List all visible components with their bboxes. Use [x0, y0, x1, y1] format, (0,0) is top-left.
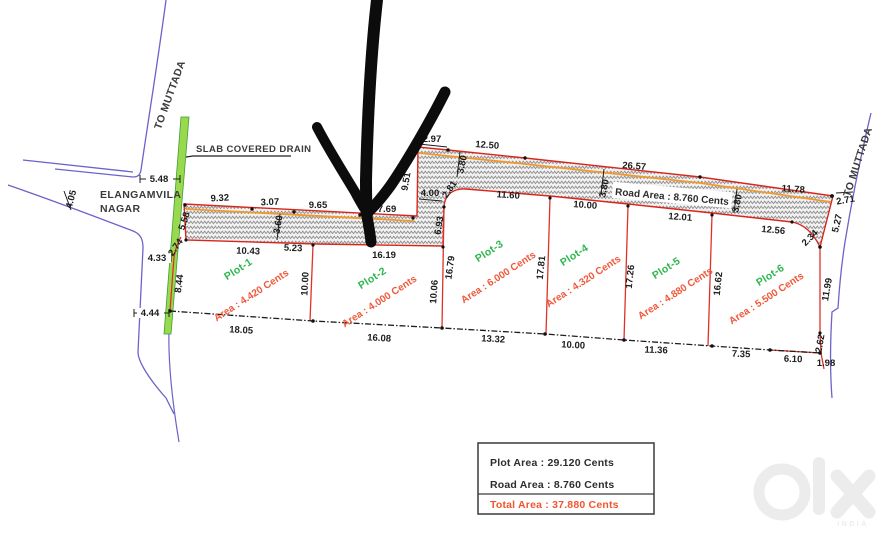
dimension-label: 18.05: [229, 324, 254, 336]
site-plan-drawing: SLAB COVERED DRAIN ELANGAMVILA NAGAR TO …: [0, 0, 886, 547]
dimension-label: 2.71: [836, 193, 857, 207]
dimension-label: 16.19: [372, 250, 396, 261]
locality-label-line1: ELANGAMVILA: [100, 189, 181, 201]
dimension-label: 6.93: [433, 216, 447, 236]
dimension-label: 8.44: [173, 273, 186, 293]
olx-l-icon: [813, 457, 825, 515]
dimension-label: 16.08: [367, 332, 391, 344]
plot1-name: Plot-1: [222, 256, 255, 283]
dimension-label: 10.00: [561, 339, 585, 351]
dimension-label: 11.36: [644, 345, 668, 357]
marker-stroke-tail: [366, 211, 371, 242]
plot5-name: Plot-5: [650, 255, 683, 282]
dimension-label: 10.00: [299, 272, 311, 296]
drain-callout: SLAB COVERED DRAIN: [186, 144, 311, 157]
dimension-label: 9.32: [210, 193, 229, 205]
dimension-label: 10.06: [428, 280, 441, 304]
dimension-label: 11.99: [820, 277, 835, 302]
marker-stroke-vertical: [366, 0, 377, 214]
dimension-label: 13.32: [481, 333, 505, 345]
olx-india-label: INDIA: [837, 521, 869, 528]
marker-stroke-left-diagonal: [317, 127, 364, 208]
to-muttada-right-label: TO MUTTADA: [841, 126, 875, 199]
dimension-label: 2.62: [814, 334, 828, 354]
drain-leader-line: [186, 156, 291, 157]
drain-label: SLAB COVERED DRAIN: [196, 144, 311, 155]
plot5-6-divider: [708, 215, 712, 346]
plot2-name: Plot-2: [356, 265, 389, 292]
site-plan-image: SLAB COVERED DRAIN ELANGAMVILA NAGAR TO …: [0, 0, 886, 547]
dimension-label: 16.62: [712, 271, 725, 296]
plot4-name: Plot-4: [558, 242, 591, 269]
dimension-label: 3.07: [260, 197, 279, 209]
olx-x-icon: [837, 476, 869, 512]
legend-plot-area: Plot Area : 29.120 Cents: [490, 457, 614, 469]
dimension-label: 17.26: [624, 264, 637, 289]
plot2-area: Area : 4.000 Cents: [340, 273, 419, 330]
plot3-area: Area : 6.000 Cents: [459, 249, 538, 306]
olx-o-icon: [759, 469, 805, 515]
dimension-label: 17.81: [535, 255, 548, 281]
dimension-label: 4.44: [141, 308, 160, 319]
dimension-label: 4.33: [148, 253, 167, 264]
dimension-label: 4.05: [64, 188, 80, 209]
dimension-label: 7.35: [732, 349, 752, 361]
dimension-label: 12.56: [761, 224, 786, 237]
dimension-label: 6.10: [784, 354, 803, 366]
dimension-label: 16.79: [443, 255, 457, 280]
legend-box: Plot Area : 29.120 Cents Road Area : 8.7…: [478, 443, 654, 514]
road-line-left: [8, 0, 174, 414]
olx-logo: INDIA: [759, 457, 869, 528]
dimension-label: 5.27: [830, 213, 845, 234]
plot3-name: Plot-3: [473, 238, 506, 265]
dimension-label: 12.01: [668, 211, 693, 224]
plot5-area: Area : 4.880 Cents: [636, 265, 715, 322]
dimension-label: 10.43: [236, 246, 260, 258]
dimension-label: 11.60: [496, 189, 520, 202]
south-boundary-chain-line: [170, 311, 821, 353]
dimension-label: 2.74: [166, 236, 186, 258]
dimension-label: 26.57: [622, 160, 646, 173]
dimension-label: 12.50: [475, 139, 499, 152]
dimension-label: 1.98: [817, 358, 836, 369]
plot4-area: Area : 4.320 Cents: [544, 253, 623, 310]
dimension-label: 10.00: [573, 199, 597, 212]
legend-road-area: Road Area : 8.760 Cents: [490, 479, 614, 491]
dimension-label: 9.65: [309, 200, 328, 211]
legend-total-area: Total Area : 37.880 Cents: [490, 499, 619, 511]
dimension-label: 5.48: [150, 174, 169, 185]
dimension-label: 5.23: [284, 243, 303, 255]
dimension-label: 4.00: [421, 188, 440, 199]
locality-label-line2: NAGAR: [100, 203, 141, 215]
dimension-label: 11.78: [781, 183, 805, 196]
